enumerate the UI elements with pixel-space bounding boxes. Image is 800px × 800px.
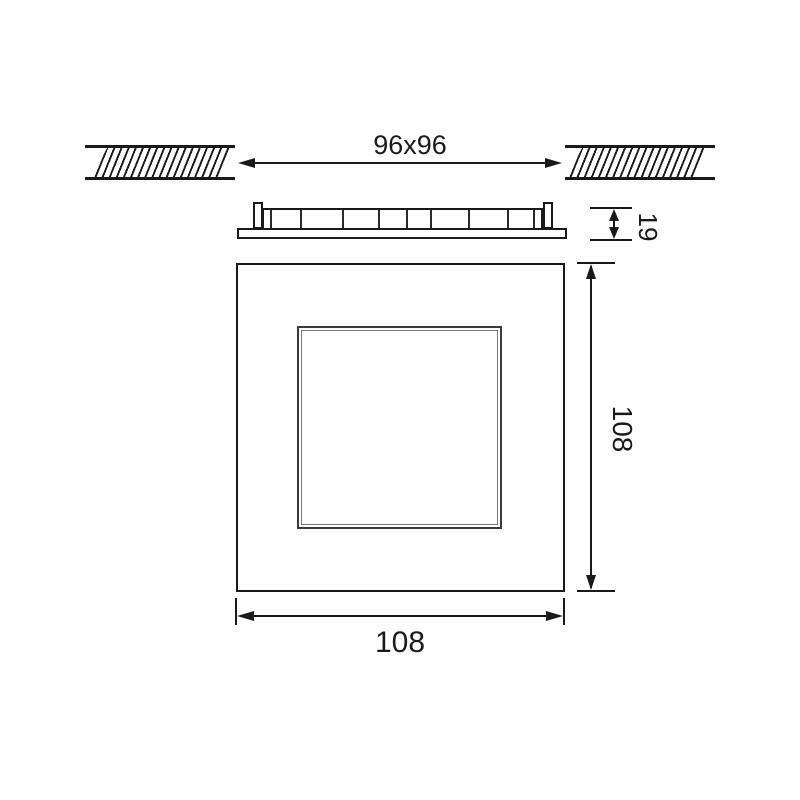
profile-body (262, 208, 543, 230)
front-inner-frame (297, 326, 502, 529)
ceiling-right-hatch (567, 148, 708, 177)
profile-body-divider (406, 210, 408, 228)
face-height-ext-line-top (577, 262, 615, 264)
cutout-arrowhead-right-icon (545, 158, 562, 168)
profile-body-divider (468, 210, 470, 228)
face-width-arrowhead-left-icon (237, 611, 254, 621)
profile-body-divider (533, 210, 535, 228)
face-height-arrowhead-up-icon (586, 264, 596, 279)
ceiling-left-bottom-line (85, 177, 235, 180)
cutout-dimension-line (252, 162, 548, 164)
face-height-ext-line-bottom (577, 590, 615, 592)
ceiling-right-top-line (565, 145, 715, 148)
profile-body-divider (300, 210, 302, 228)
ceiling-left-top-line (85, 145, 235, 148)
height-arrowhead-down-icon (609, 227, 619, 239)
height-dimension-label: 19 (633, 206, 663, 248)
height-ext-line-bottom (590, 239, 632, 241)
face-height-arrowhead-down-icon (586, 575, 596, 590)
face-height-dimension-line (590, 266, 592, 588)
cutout-dimension-label: 96x96 (348, 131, 472, 159)
face-width-arrowhead-right-icon (546, 611, 563, 621)
technical-drawing-canvas: 96x96 19 (0, 0, 800, 800)
profile-body-divider (430, 210, 432, 228)
face-width-ext-line-right (563, 598, 565, 625)
ceiling-right-bottom-line (565, 177, 715, 180)
face-width-dimension-label: 108 (340, 626, 460, 660)
profile-body-divider (378, 210, 380, 228)
profile-body-divider (342, 210, 344, 228)
front-diffuser-panel (301, 330, 498, 525)
profile-spring-clip-left (253, 202, 263, 229)
profile-body-divider (507, 210, 509, 228)
face-height-dimension-label: 108 (607, 394, 637, 464)
cutout-arrowhead-left-icon (238, 158, 255, 168)
height-arrowhead-up-icon (609, 209, 619, 221)
face-width-dimension-line (240, 615, 560, 617)
profile-body-divider (270, 210, 272, 228)
ceiling-left-hatch (92, 148, 233, 177)
profile-spring-clip-right (543, 202, 553, 229)
